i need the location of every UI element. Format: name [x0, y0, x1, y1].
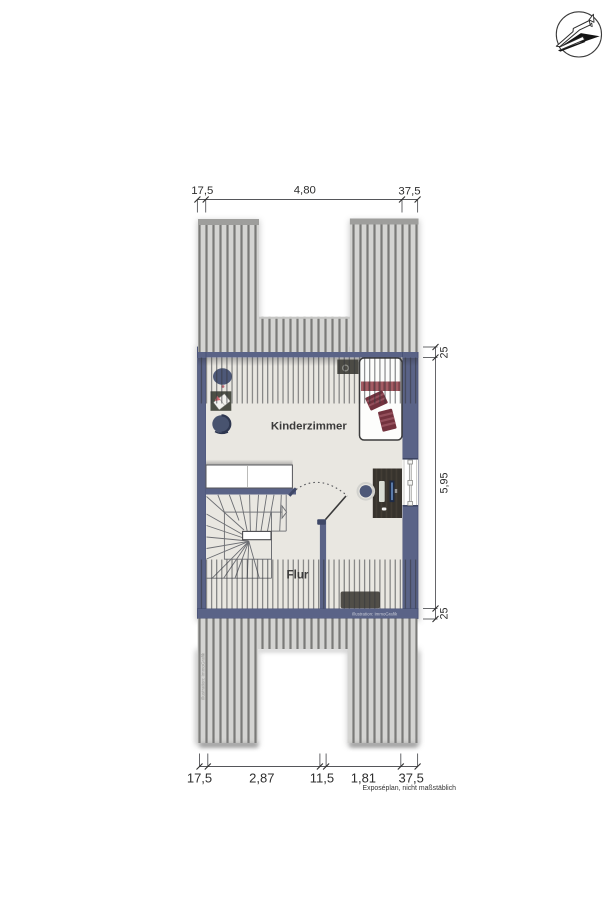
svg-text:37,5: 37,5 [399, 771, 424, 786]
svg-text:17,5: 17,5 [187, 771, 212, 786]
svg-text:Kinderzimmer: Kinderzimmer [271, 421, 348, 433]
svg-text:Flur: Flur [287, 569, 309, 582]
svg-text:2,87: 2,87 [249, 771, 274, 786]
svg-text:Exposéplan, nicht maßstäblich: Exposéplan, nicht maßstäblich [363, 785, 457, 792]
svg-text:25: 25 [439, 607, 451, 619]
svg-text:37,5: 37,5 [398, 185, 420, 197]
svg-text:Illustration: ImmoGrafik: Illustration: ImmoGrafik [352, 611, 398, 616]
svg-text:17,5: 17,5 [191, 185, 213, 197]
svg-text:Illustration: ImmoGrafik: Illustration: ImmoGrafik [201, 652, 206, 700]
svg-text:4,80: 4,80 [294, 184, 316, 196]
svg-text:11,5: 11,5 [310, 771, 334, 786]
svg-text:1,81: 1,81 [351, 771, 376, 786]
svg-text:25: 25 [439, 346, 451, 358]
svg-text:5,95: 5,95 [439, 472, 451, 493]
